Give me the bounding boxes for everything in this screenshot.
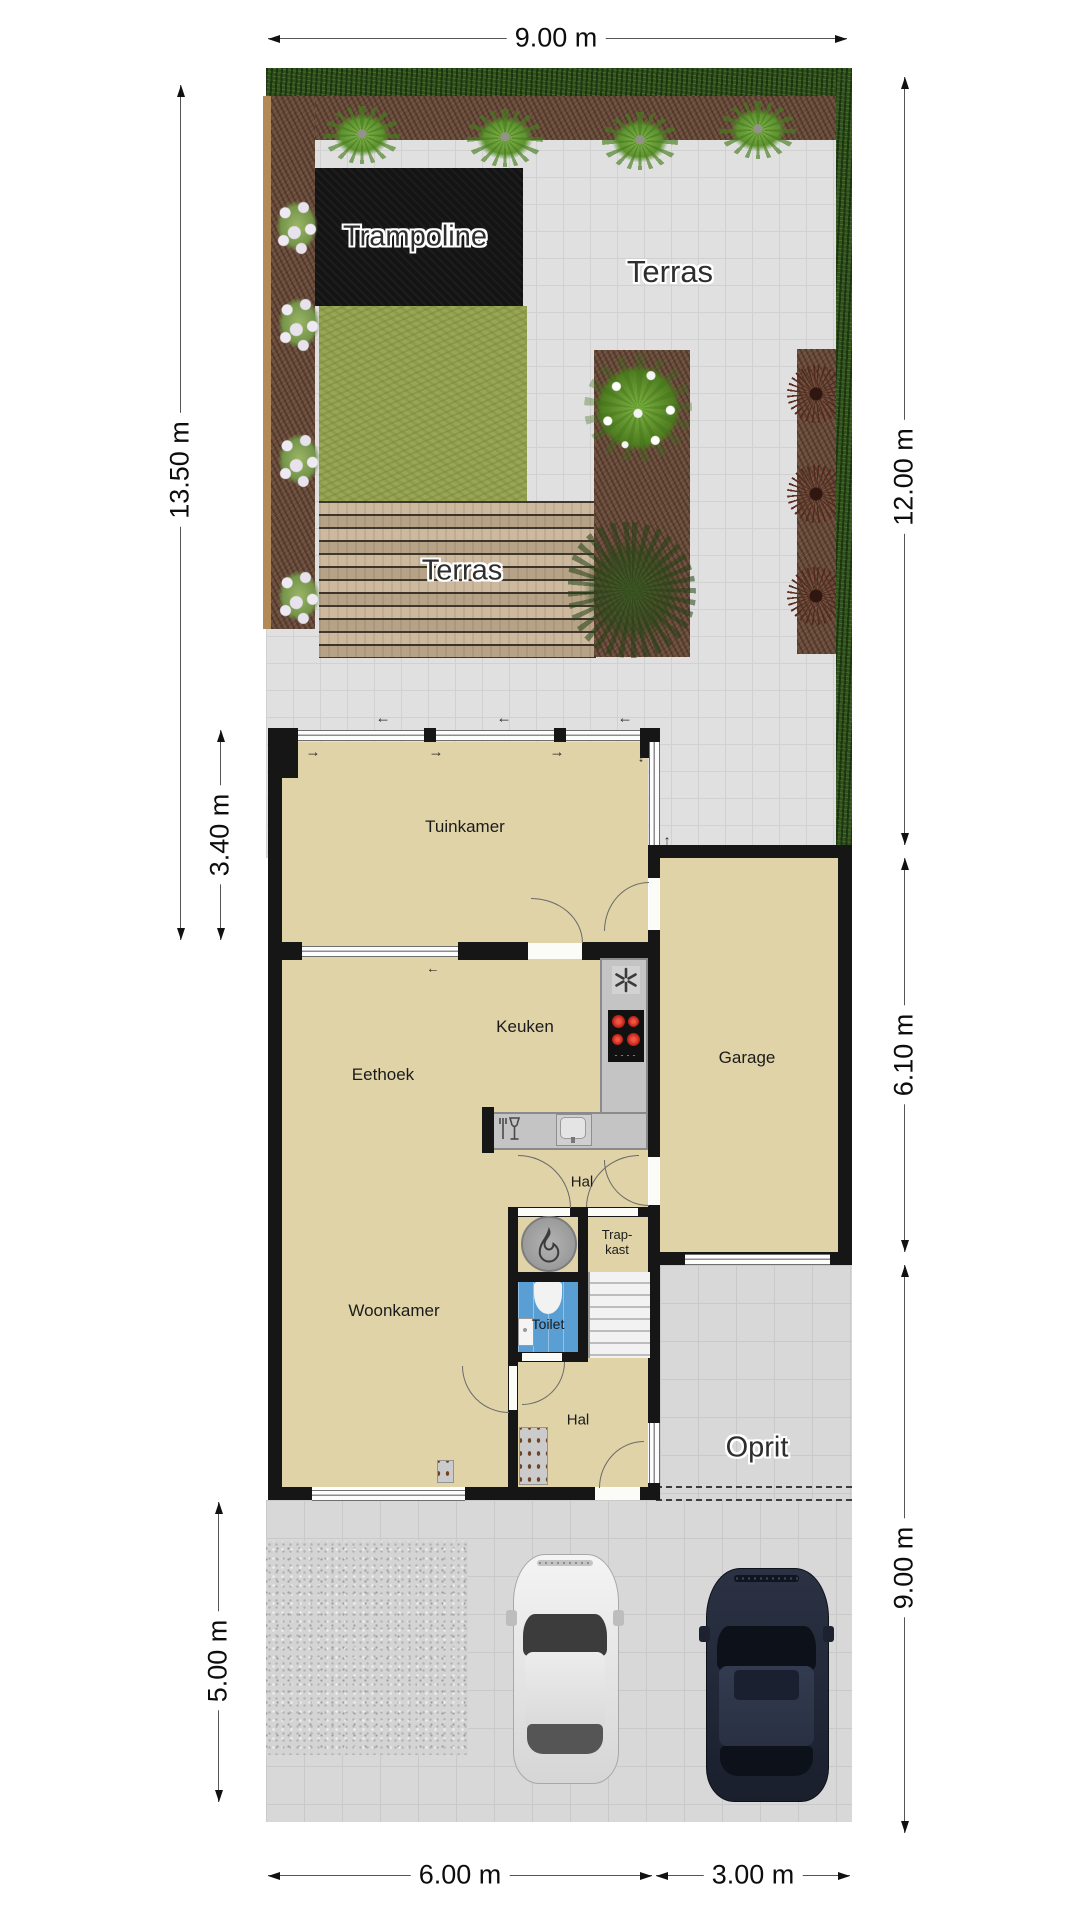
- dimension-label-garden-right: 12.00 m: [889, 420, 920, 534]
- stove-icon: [608, 1010, 644, 1062]
- slide-arrow-icon: →: [306, 745, 321, 760]
- wall: [648, 845, 852, 858]
- car-grill: [734, 1575, 799, 1582]
- wall: [282, 942, 302, 960]
- car-mirror: [506, 1610, 517, 1626]
- building-line-dashed: [656, 1499, 852, 1501]
- wall: [554, 728, 566, 742]
- flower-bush: [272, 290, 326, 356]
- terrace-deck-label: Terras: [422, 555, 503, 588]
- hedge-right: [836, 68, 852, 845]
- building-line-dashed: [656, 1486, 852, 1488]
- dark-car: [706, 1568, 827, 1800]
- slide-arrow-icon: →: [429, 745, 444, 760]
- radiator: [519, 1427, 548, 1485]
- garage-label: Garage: [719, 1048, 776, 1068]
- hal-upper-label: Hal: [571, 1174, 594, 1191]
- dimension-label-garage: 6.10 m: [889, 1006, 920, 1105]
- trampoline-label: Trampoline: [343, 221, 487, 254]
- dimension-label-tuinkamer: 3.40 m: [205, 786, 236, 885]
- door-opening: [522, 1353, 562, 1361]
- wall: [578, 1272, 588, 1362]
- thermostat: [437, 1460, 454, 1483]
- oprit-label: Oprit: [726, 1432, 789, 1465]
- floor-plan: ← ← ← → → → ↓ ↑ ←: [0, 0, 1080, 1920]
- car-windshield: [523, 1614, 607, 1656]
- wall: [508, 1207, 518, 1362]
- wall: [458, 942, 528, 960]
- car-sunroof: [734, 1670, 799, 1700]
- toilet-label: Toilet: [532, 1316, 565, 1332]
- trapkast-label: Trap- kast: [602, 1227, 633, 1257]
- wall: [648, 930, 660, 1157]
- front-door: [649, 1423, 660, 1483]
- wall: [508, 1272, 588, 1282]
- window-arrow-icon: ←: [427, 962, 440, 975]
- car-rear-window: [720, 1746, 813, 1776]
- garage-window: [685, 1254, 830, 1265]
- wall: [268, 742, 282, 1500]
- kitchen-sink-icon: [556, 1114, 592, 1146]
- window: [302, 946, 458, 957]
- garden-soil-border-left: [271, 96, 315, 629]
- fern-plant: [324, 106, 400, 164]
- wall: [482, 1107, 494, 1153]
- car-mirror: [699, 1626, 710, 1642]
- flower-bush: [272, 426, 326, 492]
- wall: [838, 845, 852, 1265]
- door-opening: [518, 1208, 570, 1216]
- wall: [465, 1487, 595, 1500]
- woonkamer-label: Woonkamer: [348, 1301, 439, 1321]
- hedge-top: [266, 68, 852, 96]
- fern-plant: [467, 109, 543, 167]
- door-opening: [649, 878, 659, 930]
- wall: [424, 728, 436, 742]
- dimension-label-driveway: 9.00 m: [889, 1519, 920, 1618]
- dimension-label-bottom-left: 6.00 m: [411, 1860, 510, 1891]
- door-opening: [649, 1157, 659, 1205]
- car-rear-window: [527, 1724, 603, 1754]
- door-opening: [528, 943, 582, 959]
- window-arrow-icon: ↓: [638, 751, 645, 764]
- flower-bush: [270, 193, 324, 259]
- dimension-label-bottom-right: 3.00 m: [704, 1860, 803, 1891]
- fireplace-icon: [521, 1216, 577, 1272]
- hal-lower-label: Hal: [567, 1412, 590, 1429]
- terrace-top-label: Terras: [627, 254, 713, 290]
- slide-arrow-icon: ←: [376, 711, 391, 726]
- dimension-label-garden-left: 13.50 m: [165, 413, 196, 527]
- dimension-label-parking: 5.00 m: [203, 1612, 234, 1711]
- flowering-shrub: [584, 354, 692, 462]
- driveway-tiles: [660, 1265, 852, 1500]
- keuken-label: Keuken: [496, 1017, 554, 1037]
- white-car: [513, 1554, 617, 1782]
- car-grill: [537, 1560, 593, 1566]
- dimension-label-top: 9.00 m: [507, 23, 606, 54]
- wall: [578, 1207, 588, 1272]
- slide-arrow-icon: ←: [497, 711, 512, 726]
- wild-shrub: [568, 522, 696, 658]
- lawn: [319, 306, 527, 502]
- car-mirror: [613, 1610, 624, 1626]
- slide-arrow-icon: →: [550, 745, 565, 760]
- fern-plant: [720, 101, 796, 159]
- car-mirror: [823, 1626, 834, 1642]
- dishwasher-icon: [496, 1115, 522, 1143]
- tuinkamer-label: Tuinkamer: [425, 817, 505, 837]
- wall: [268, 1487, 312, 1500]
- extractor-fan-icon: [612, 966, 640, 994]
- door-opening: [509, 1366, 517, 1410]
- window: [649, 742, 660, 845]
- staircase: [588, 1272, 650, 1358]
- wall: [640, 1487, 660, 1500]
- sliding-door-band: [298, 730, 640, 741]
- flower-bush: [272, 563, 326, 629]
- door-opening: [586, 1208, 638, 1216]
- car-windshield: [717, 1626, 816, 1670]
- fern-plant: [602, 112, 678, 170]
- eethoek-label: Eethoek: [352, 1065, 414, 1085]
- door-opening: [595, 1488, 640, 1500]
- gravel-patch: [266, 1541, 468, 1755]
- window: [312, 1490, 465, 1501]
- garden-wood-edge: [263, 96, 271, 629]
- slide-arrow-icon: ←: [618, 711, 633, 726]
- car-roof: [525, 1652, 605, 1728]
